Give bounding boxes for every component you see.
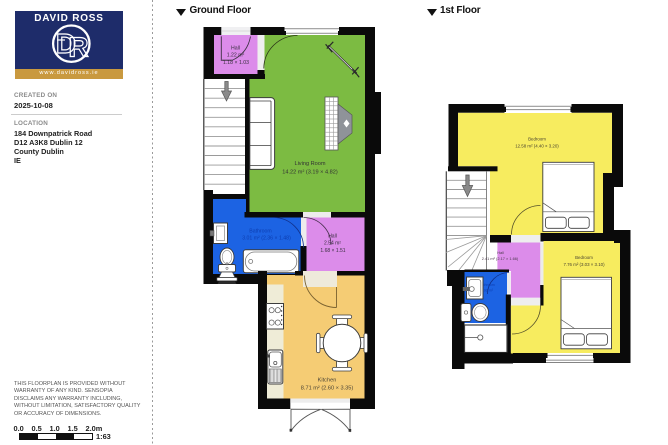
svg-text:Bedroom: Bedroom (528, 136, 546, 141)
svg-text:2.41 m² (2.17 × 1.66): 2.41 m² (2.17 × 1.66) (482, 256, 519, 261)
svg-text:R: R (68, 32, 88, 63)
svg-text:14.22 m² (3.19 × 4.82): 14.22 m² (3.19 × 4.82) (282, 170, 338, 176)
svg-text:7.76 m² (3.03 × 3.10): 7.76 m² (3.03 × 3.10) (563, 262, 605, 267)
svg-text:Living Room: Living Room (294, 161, 325, 167)
svg-text:1.68 × 1.51: 1.68 × 1.51 (320, 248, 345, 254)
svg-text:2.54 m²: 2.54 m² (324, 241, 341, 247)
svg-text:12.58 m² (4.40 × 3.20): 12.58 m² (4.40 × 3.20) (515, 144, 559, 149)
svg-text:Hall: Hall (328, 233, 337, 239)
svg-text:Kitchen: Kitchen (318, 378, 337, 384)
svg-text:3.01 m² (2.36 × 1.48): 3.01 m² (2.36 × 1.48) (242, 236, 291, 242)
svg-text:Hall: Hall (231, 45, 240, 51)
svg-text:Bathroom: Bathroom (249, 229, 272, 235)
svg-text:Hall: Hall (497, 250, 504, 255)
svg-text:8.71 m² (2.60 × 3.35): 8.71 m² (2.60 × 3.35) (301, 386, 354, 392)
svg-text:Bedroom: Bedroom (575, 255, 593, 260)
